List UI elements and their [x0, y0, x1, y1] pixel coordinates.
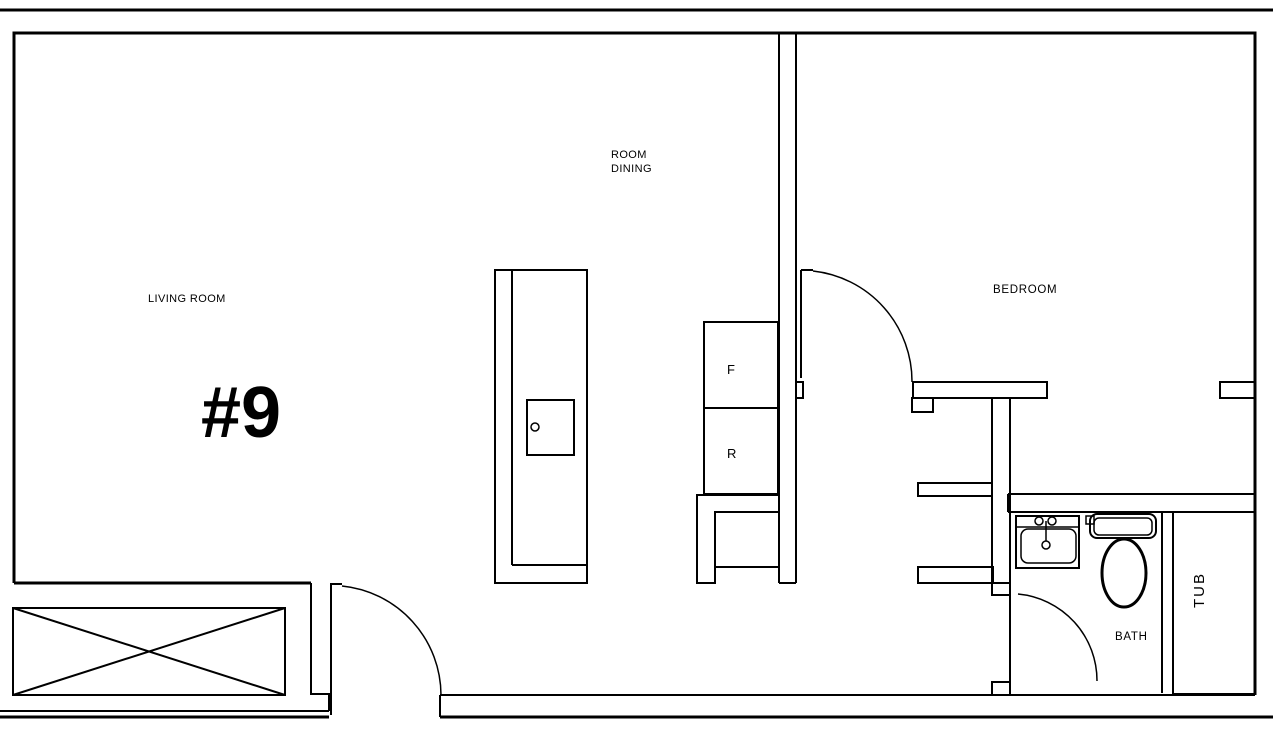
entry-door-swing-arc [342, 586, 441, 695]
unit-number-label: #9 [201, 384, 281, 442]
island-appliance [527, 400, 574, 455]
toilet-bowl [1102, 539, 1146, 607]
dining-bedroom-wall [779, 33, 796, 583]
bath-door-swing-arc [1018, 594, 1097, 681]
closet-x-box [13, 608, 285, 695]
dining-room-label-line1: ROOM [611, 150, 647, 161]
range-label: R [727, 447, 736, 460]
island-knob [531, 423, 539, 431]
toilet [1086, 514, 1156, 607]
outer-walls [0, 33, 1273, 717]
entry-door [331, 583, 441, 715]
kitchen-island [495, 270, 587, 583]
kitchen-counter [697, 495, 780, 583]
bathroom-sink [1016, 516, 1079, 568]
bedroom-door [801, 270, 912, 382]
floor-plan: LIVING ROOM ROOM DINING BEDROOM BATH TUB… [0, 0, 1273, 730]
floor-plan-drawing [0, 0, 1273, 730]
bedroom-door-swing-arc [813, 271, 912, 382]
range-box [704, 408, 778, 494]
bath-door [1010, 593, 1097, 681]
hall-bath-walls [918, 398, 1010, 695]
living-room-label: LIVING ROOM [148, 294, 226, 305]
refrigerator-box [704, 322, 778, 408]
dining-room-label-line2: DINING [611, 164, 652, 175]
bath-label: BATH [1115, 632, 1148, 644]
bedroom-label: BEDROOM [993, 285, 1057, 297]
refrigerator-label: F [727, 363, 735, 376]
bathtub [1162, 512, 1255, 694]
tub-label: TUB [1190, 560, 1208, 620]
bedroom-walls [796, 382, 1255, 512]
